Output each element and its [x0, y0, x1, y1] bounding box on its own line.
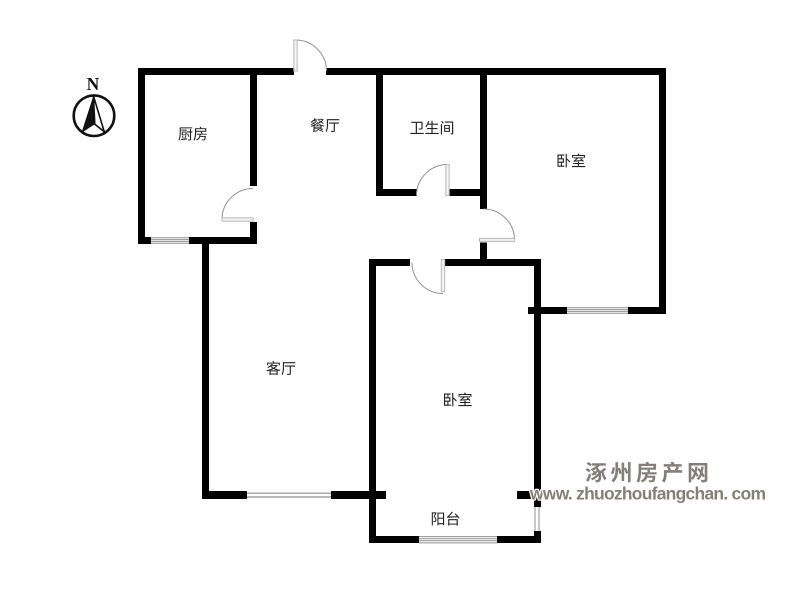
svg-text:N: N — [87, 74, 100, 94]
svg-text:www. zhuozhoufangchan. com: www. zhuozhoufangchan. com — [529, 484, 766, 504]
